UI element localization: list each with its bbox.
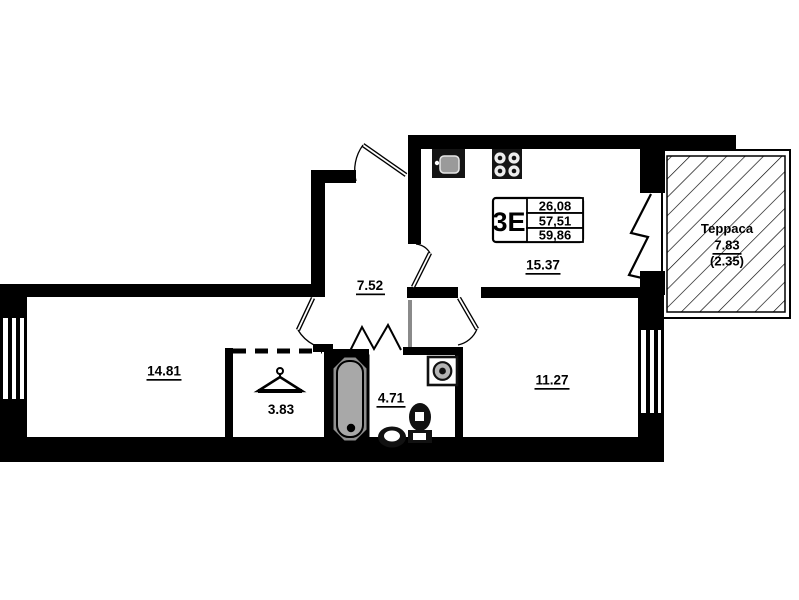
wall-wardrobe-left (225, 348, 233, 437)
living-room-door (298, 298, 314, 345)
living-room-area-label: 14.81 (147, 364, 181, 379)
legend-area-1: 26,08 (539, 199, 572, 214)
kitchen-area-label: 15.37 (526, 258, 560, 273)
window-left-mullion-1 (8, 318, 12, 399)
sink-icon (432, 149, 465, 178)
bathroom-area-label: 4.71 (378, 391, 405, 406)
floorplan-drawing: 3Е 26,08 57,51 59,86 7.52 15.37 14.81 3.… (0, 0, 799, 600)
wall-hall-bath-thin (408, 300, 412, 347)
floorplan-canvas: 3Е 26,08 57,51 59,86 7.52 15.37 14.81 3.… (0, 0, 799, 600)
entrance-door (355, 145, 406, 181)
stove-icon (492, 149, 522, 179)
hanger-icon (258, 368, 302, 391)
wall-hall-top (311, 170, 356, 183)
legend-type-label: 3Е (492, 207, 525, 237)
kitchen-door (413, 244, 430, 287)
hallway-label-underline (356, 294, 385, 296)
window-right (641, 330, 661, 413)
sink-icon (378, 427, 406, 448)
legend: 3Е 26,08 57,51 59,86 (492, 198, 583, 243)
legend-area-2: 57,51 (539, 214, 572, 229)
wall-terrace-block-bottom (640, 271, 665, 295)
bedroom-label-underline (535, 388, 570, 390)
wall-terrace-block-top (640, 149, 665, 193)
window-left (3, 318, 24, 399)
wall-vestibule-stub (313, 344, 333, 352)
terrace-area-label: 7.83 (714, 238, 739, 253)
bathtub-icon (332, 356, 368, 442)
wall-kitchen-bedroom-divider-b (481, 287, 641, 298)
window-left-glass (3, 318, 24, 399)
wall-bath-top-right (403, 347, 463, 355)
bedroom-area-label: 11.27 (535, 373, 568, 388)
hallway-area-label: 7.52 (357, 278, 383, 293)
bedroom-door (458, 298, 477, 345)
toilet-icon (408, 403, 432, 443)
window-right-mullion-1 (646, 330, 650, 413)
kitchen-label-underline (526, 273, 561, 275)
wall-kitchen-bedroom-divider-a (407, 287, 458, 298)
terrace-door (629, 194, 651, 280)
terrace-reduced-area-label: (2.35) (710, 254, 744, 269)
washing-machine-icon (428, 357, 457, 385)
legend-area-3: 59,86 (539, 228, 572, 243)
living-room-label-underline (147, 379, 182, 381)
window-right-mullion-2 (654, 330, 658, 413)
window-left-mullion-2 (16, 318, 20, 399)
bathroom-label-underline (377, 406, 406, 408)
wall-hall-left (311, 183, 325, 297)
bathroom-door (350, 325, 401, 351)
wall-kitchen-top (408, 135, 736, 149)
terrace-title: Терраса (701, 221, 754, 236)
wall-kitchen-left (408, 149, 421, 244)
wall-room1-top (0, 284, 313, 297)
wardrobe-area-label: 3.83 (268, 402, 295, 417)
